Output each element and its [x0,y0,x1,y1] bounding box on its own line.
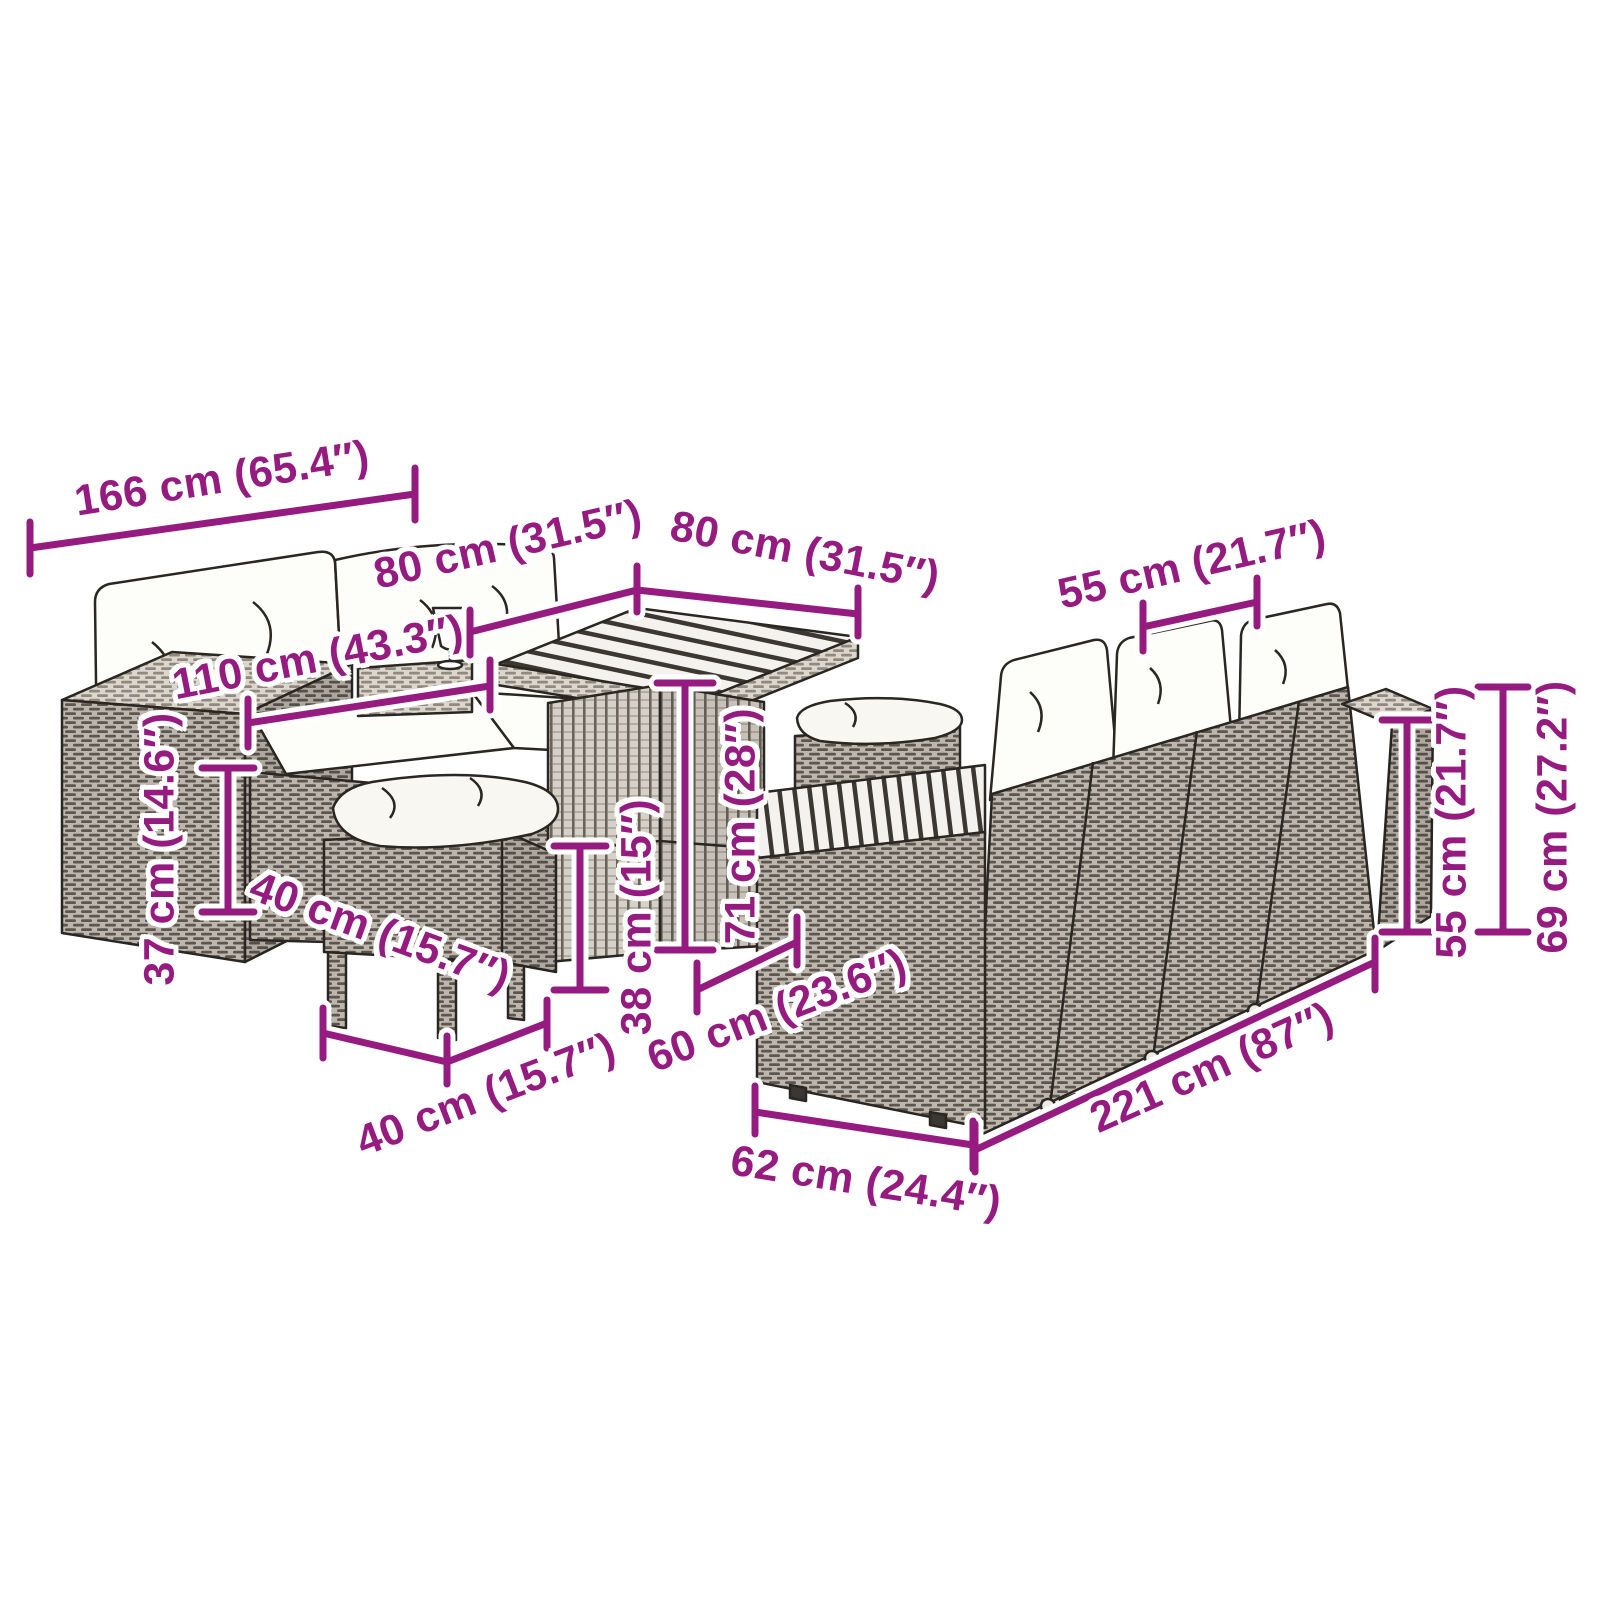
dim-label-table-height: 71 cm (28″) [717,708,766,944]
dim-label-backrest-height: 55 cm (21.7″) [1428,685,1477,958]
dim-line-total-height [1478,687,1528,932]
dim-label-stool-height: 38 cm (15″) [613,799,662,1035]
diagram-stage: 166 cm (65.4″) 80 cm (31.5″) 80 cm (31.5… [0,0,1600,1600]
rear-stool-cushion [797,698,962,744]
corner-sofa [757,604,1433,1138]
furniture-illustration [0,0,1600,1600]
front-stool-cushion [333,775,558,848]
dim-label-total-height: 69 cm (27.2″) [1529,680,1578,953]
dim-label-armrest-height: 37 cm (14.6″) [136,712,185,985]
